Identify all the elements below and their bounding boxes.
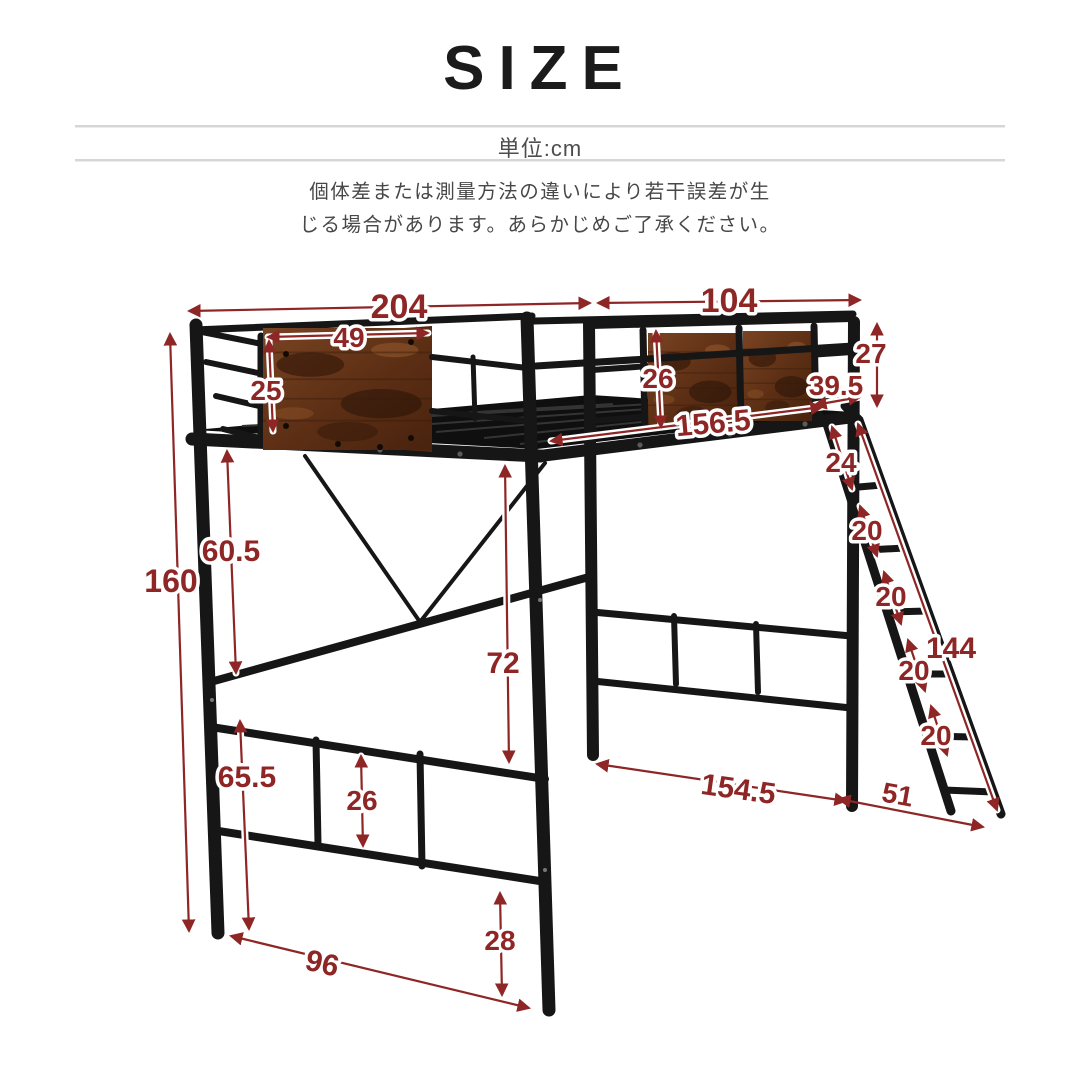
dim-ladder-step-3: 20 bbox=[898, 655, 929, 686]
dim-lower-rail-height: 28 bbox=[484, 925, 515, 956]
dim-ladder-step-2: 20 bbox=[875, 581, 906, 612]
dim-panel-width: 49 bbox=[333, 322, 364, 353]
dim-guard-above-deck: 27 bbox=[855, 338, 886, 369]
dim-under-bed-depth: 154.5 bbox=[699, 768, 778, 811]
dim-ladder-top-offset: 39.5 bbox=[809, 370, 864, 401]
dim-side-rail-length: 156.5 bbox=[674, 404, 752, 443]
dim-ladder-step-4: 20 bbox=[920, 720, 951, 751]
dim-bed-length: 204 bbox=[371, 288, 428, 326]
dim-rear-guard-height: 26 bbox=[642, 363, 673, 394]
loft-bed-diagram: 204 104 49 25 26 27 39.5 156.5 24 20 20 … bbox=[0, 0, 1080, 1080]
dim-ladder-floor-offset: 51 bbox=[880, 777, 916, 813]
dim-upper-clearance: 60.5 bbox=[202, 535, 260, 568]
dim-bed-width: 104 bbox=[701, 282, 758, 320]
bed-frame bbox=[192, 314, 1001, 1010]
dim-footboard-panel-height: 26 bbox=[346, 785, 377, 816]
dim-under-bed-clearance: 72 bbox=[486, 647, 519, 680]
dim-footboard-height: 65.5 bbox=[218, 761, 276, 794]
dim-ladder-step-1: 20 bbox=[851, 515, 882, 546]
dim-front-leg-span: 96 bbox=[302, 944, 342, 984]
dim-panel-height: 25 bbox=[250, 375, 281, 406]
dim-ladder-length: 144 bbox=[926, 632, 976, 665]
dim-total-height: 160 bbox=[144, 563, 197, 599]
dim-ladder-top-gap: 24 bbox=[825, 447, 857, 478]
